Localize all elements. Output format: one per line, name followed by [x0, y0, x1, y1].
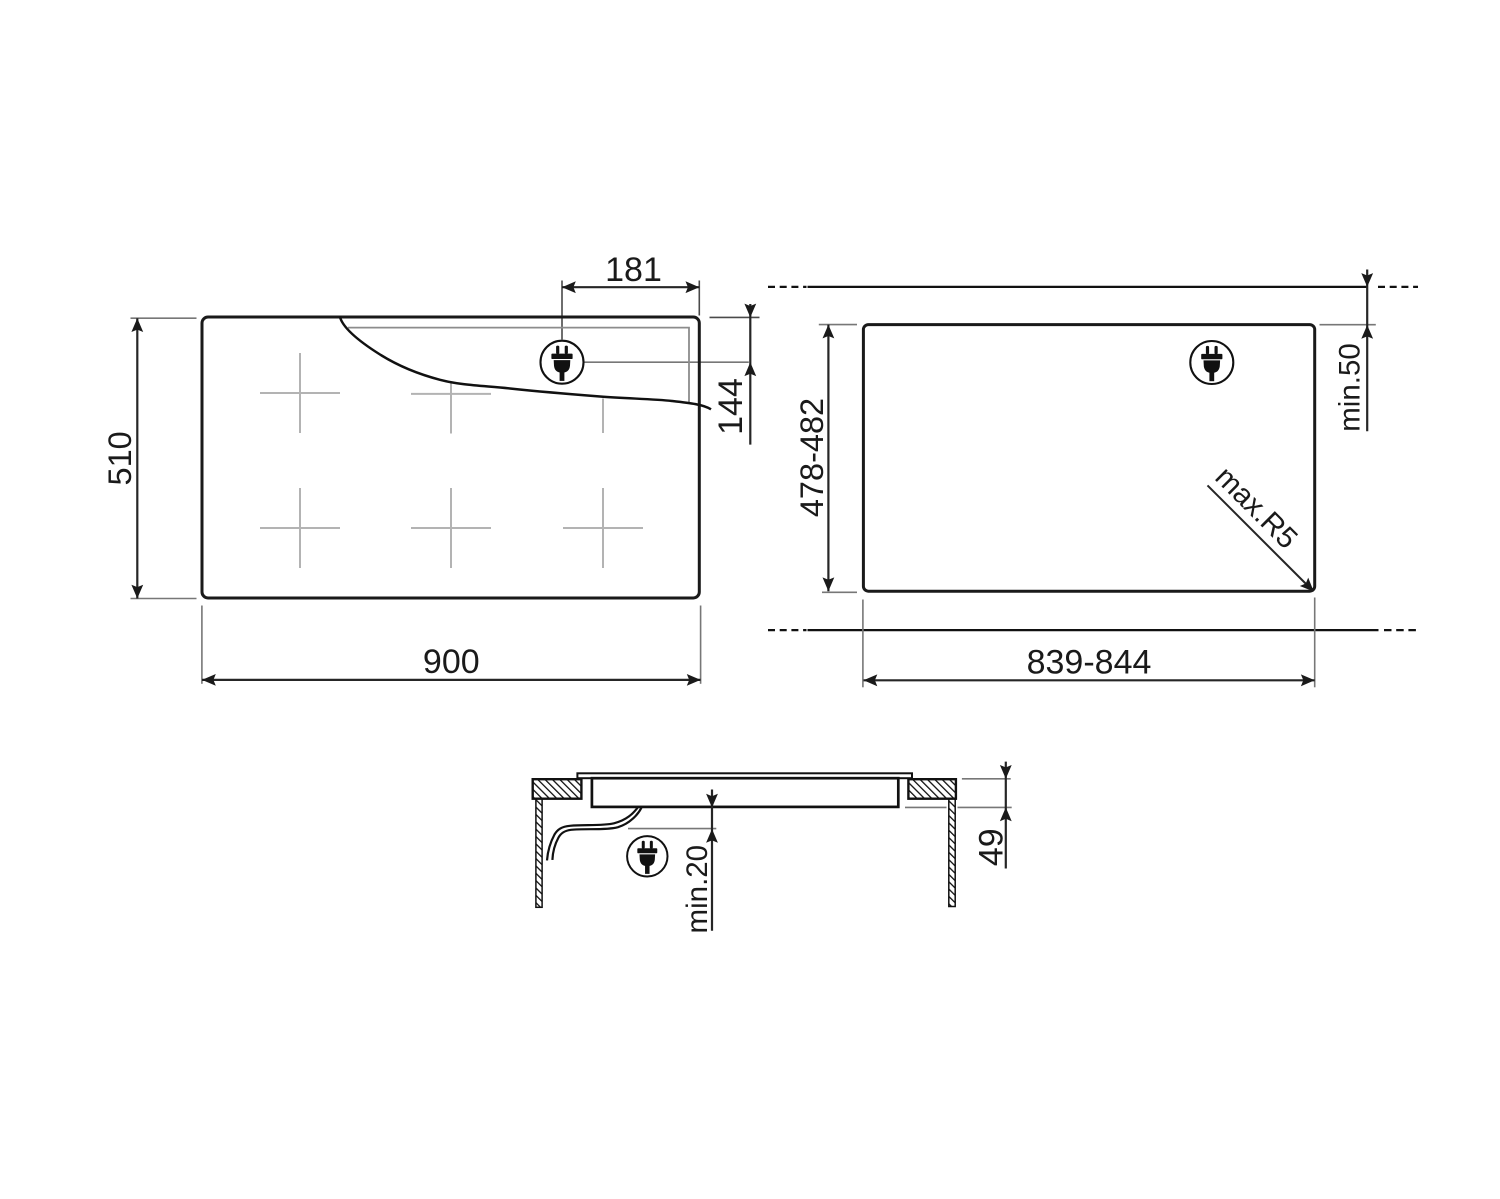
svg-text:839-844: 839-844 — [1027, 643, 1152, 681]
svg-text:900: 900 — [423, 643, 480, 681]
svg-text:49: 49 — [973, 828, 1011, 866]
svg-text:min.50: min.50 — [1334, 343, 1367, 432]
svg-text:181: 181 — [605, 251, 662, 289]
svg-text:510: 510 — [102, 431, 138, 485]
svg-text:144: 144 — [712, 378, 750, 435]
svg-text:478-482: 478-482 — [794, 398, 830, 517]
svg-text:min.20: min.20 — [681, 845, 714, 934]
